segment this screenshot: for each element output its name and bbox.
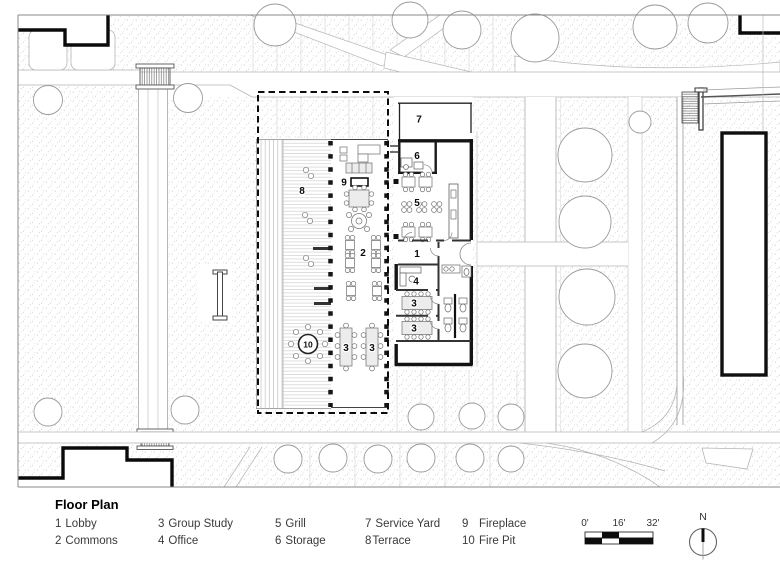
legend-entry-label: Terrace bbox=[372, 535, 410, 547]
legend-entry-num: 1 bbox=[55, 516, 61, 533]
room-label-terrace: 8 bbox=[299, 186, 305, 197]
room-label-group-study-1: 3 bbox=[411, 299, 417, 310]
room-label-group-study-3: 3 bbox=[343, 343, 349, 354]
room-label-storage: 6 bbox=[414, 151, 420, 162]
building bbox=[256, 97, 477, 409]
room-label-fireplace: 9 bbox=[341, 178, 347, 189]
legend-entry: 8Terrace bbox=[365, 533, 440, 550]
legend-entry-label: Group Study bbox=[168, 518, 233, 530]
legend-entry-label: Fire Pit bbox=[479, 535, 515, 547]
legend-entry-num: 10 bbox=[462, 533, 475, 550]
legend-entry-label: Fireplace bbox=[479, 518, 526, 530]
legend-entry-num: 7 bbox=[365, 516, 371, 533]
legend-entry-num: 3 bbox=[158, 516, 164, 533]
room-label-group-study-4: 3 bbox=[369, 343, 375, 354]
legend-entry-num: 9 bbox=[462, 516, 475, 533]
room-label-office: 4 bbox=[413, 277, 419, 288]
legend-entry: 2Commons bbox=[55, 533, 118, 550]
room-label-commons: 2 bbox=[360, 248, 366, 259]
legend-entry: 3Group Study bbox=[158, 516, 233, 533]
legend-entry-label: Lobby bbox=[65, 518, 96, 530]
north-label: N bbox=[699, 511, 707, 523]
terrace bbox=[256, 139, 334, 409]
legend-entry: 4Office bbox=[158, 533, 233, 550]
scale-tick-32: 32' bbox=[646, 518, 659, 529]
legend-entry-label: Office bbox=[168, 535, 198, 547]
room-label-service-yard: 7 bbox=[416, 115, 422, 126]
commons-hall bbox=[331, 139, 389, 409]
legend-entry-label: Storage bbox=[285, 535, 325, 547]
legend-entry: 1Lobby bbox=[55, 516, 118, 533]
legend-entry-label: Service Yard bbox=[375, 518, 440, 530]
room-label-grill: 5 bbox=[414, 198, 420, 209]
legend-column-3: 5Grill 6Storage bbox=[275, 516, 326, 550]
scale-tick-16: 16' bbox=[612, 518, 625, 529]
legend-entry-num: 6 bbox=[275, 533, 281, 550]
legend-entry-label: Grill bbox=[285, 518, 305, 530]
legend-entry-num: 4 bbox=[158, 533, 164, 550]
legend-entry-num: 2 bbox=[55, 533, 61, 550]
legend-column-2: 3Group Study 4Office bbox=[158, 516, 233, 550]
floor-plan-sheet: 8 9 2 10 7 6 5 1 4 3 3 3 3 Floor Plan 1L… bbox=[0, 0, 780, 564]
north-arrow: N bbox=[684, 506, 724, 562]
scale-bar: 0' 16' 32' bbox=[573, 512, 673, 556]
north-needle bbox=[702, 529, 705, 543]
legend-entry-num: 5 bbox=[275, 516, 281, 533]
legend-entry: 10Fire Pit bbox=[462, 533, 526, 550]
legend-column-5: 9Fireplace 10Fire Pit bbox=[462, 516, 526, 550]
room-label-group-study-2: 3 bbox=[411, 324, 417, 335]
legend-entry: 9Fireplace bbox=[462, 516, 526, 533]
legend-title: Floor Plan bbox=[55, 497, 119, 512]
legend-column-1: 1Lobby 2Commons bbox=[55, 516, 118, 550]
room-label-fire-pit: 10 bbox=[303, 340, 313, 350]
east-wing bbox=[390, 97, 477, 367]
legend-entry: 7Service Yard bbox=[365, 516, 440, 533]
legend-column-4: 7Service Yard 8Terrace bbox=[365, 516, 440, 550]
floor-plan-drawing: 8 9 2 10 7 6 5 1 4 3 3 3 3 bbox=[0, 0, 780, 490]
legend-entry: 6Storage bbox=[275, 533, 326, 550]
legend-entry-num: 8 bbox=[365, 533, 371, 550]
legend-entry: 5Grill bbox=[275, 516, 326, 533]
room-label-lobby: 1 bbox=[414, 249, 420, 260]
legend-entry-label: Commons bbox=[65, 535, 117, 547]
scale-tick-0: 0' bbox=[581, 518, 589, 529]
